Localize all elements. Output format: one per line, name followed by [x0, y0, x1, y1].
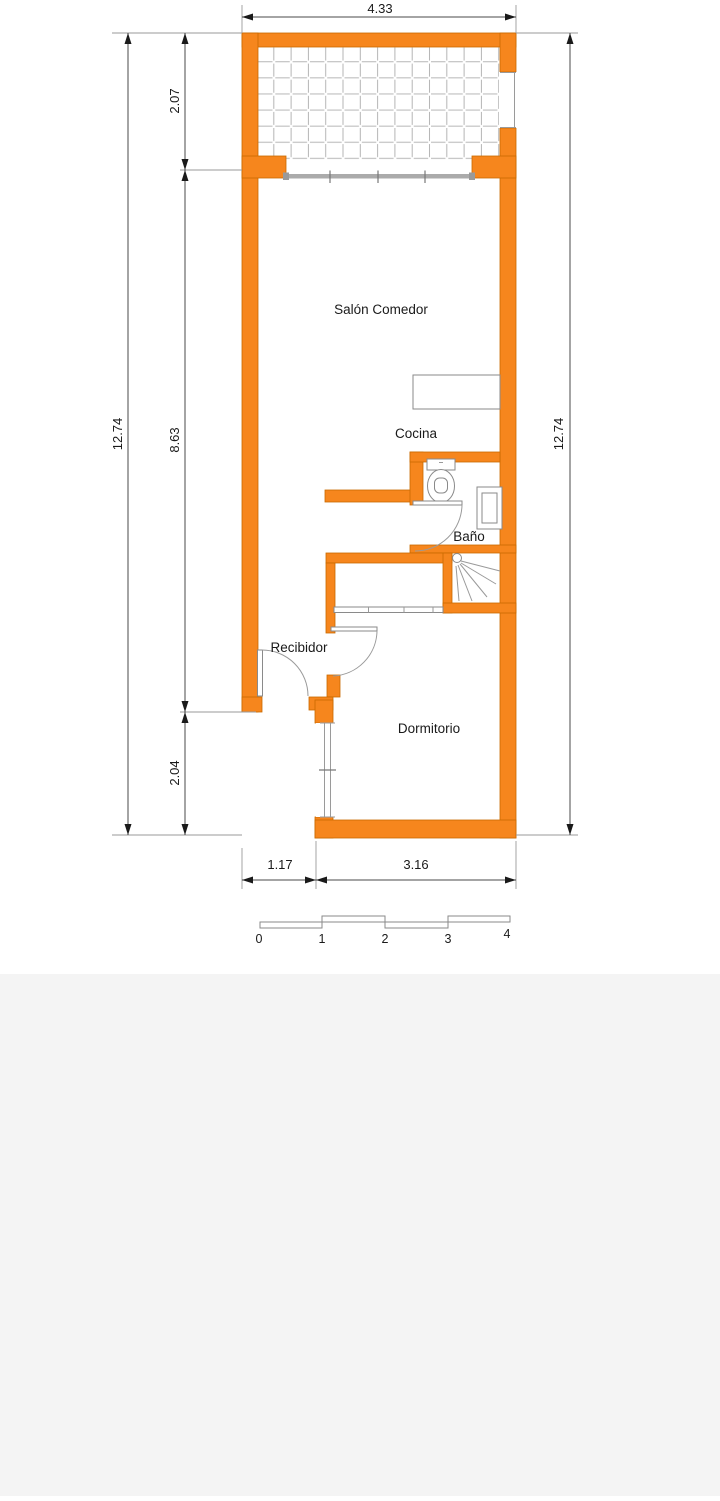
room-label-salon-comedor: Salón Comedor	[334, 302, 428, 317]
wall-left-foot	[242, 697, 262, 712]
dimension-living-height: 8.63	[167, 427, 182, 452]
terrace-pilaster-left	[242, 156, 286, 178]
kitchen-counter	[413, 375, 500, 409]
room-label-recibidor: Recibidor	[270, 640, 328, 655]
wall-left	[242, 33, 258, 712]
scale-tick-3: 3	[445, 932, 452, 946]
terrace-pilaster-right	[472, 156, 516, 178]
dimension-height-left-total: 12.74	[110, 418, 125, 451]
scale-tick-2: 2	[382, 932, 389, 946]
scale-tick-1: 1	[319, 932, 326, 946]
closet-sliding-door	[334, 607, 443, 613]
wall-closet-north	[326, 553, 452, 563]
sink-symbol	[477, 487, 502, 529]
room-label-cocina: Cocina	[395, 426, 438, 441]
floor-plan-drawing: Salón Comedor Cocina Baño Recibidor Dorm…	[0, 0, 720, 1496]
wall-dorm-door-stub	[327, 675, 340, 697]
wall-closet-west	[326, 563, 335, 633]
wall-openings	[499, 72, 517, 128]
wall-dorm-south	[315, 820, 516, 838]
wall-dorm-west-upper	[315, 700, 333, 723]
dimension-notch-height: 2.04	[167, 760, 182, 785]
wall-kitchen-hall	[325, 490, 413, 502]
wall-dorm-north	[443, 603, 516, 613]
wall-right-lower	[500, 128, 516, 838]
dimension-terrace-depth: 2.07	[167, 88, 182, 113]
scale-tick-0: 0	[256, 932, 263, 946]
room-label-dormitorio: Dormitorio	[398, 721, 460, 736]
room-label-bano: Baño	[453, 529, 485, 544]
dimension-bottom-left-width: 1.17	[267, 857, 292, 872]
wall-right-upper	[500, 33, 516, 72]
dimension-width-top: 4.33	[367, 1, 392, 16]
background-footer	[0, 974, 720, 1496]
toilet-symbol	[427, 459, 455, 503]
wall-bath-south	[410, 545, 516, 553]
dimension-height-right-total: 12.74	[551, 418, 566, 451]
dimension-bottom-right-width: 3.16	[403, 857, 428, 872]
wall-top	[242, 33, 516, 47]
floor-plan-page: Salón Comedor Cocina Baño Recibidor Dorm…	[0, 0, 720, 1496]
scale-tick-4: 4	[504, 927, 511, 941]
terrace-tile-hatch	[258, 47, 500, 160]
